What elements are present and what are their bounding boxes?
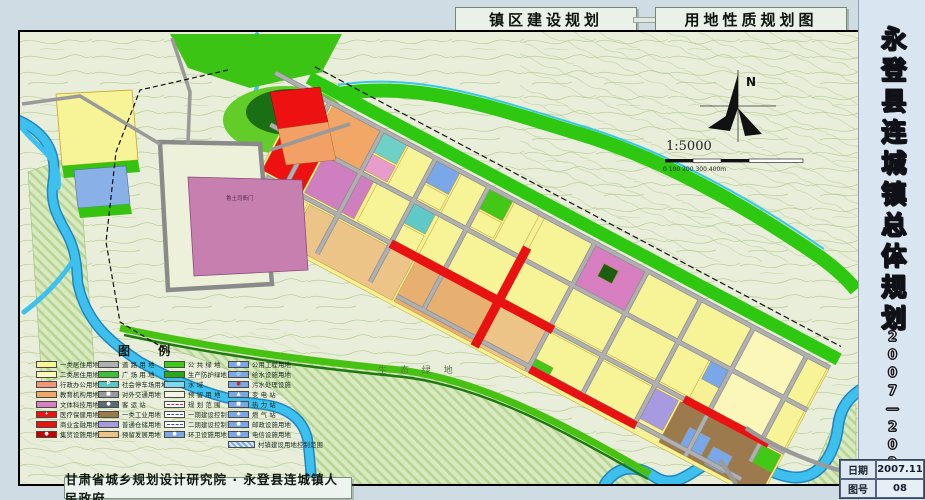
legend-swatch: ● (228, 381, 249, 388)
legend-item-label: 预 留 用 地 (188, 390, 221, 399)
legend-swatch: ● (228, 421, 249, 428)
legend-item: ◎给水设施用地 (228, 371, 323, 378)
legend-line-sample (167, 404, 183, 405)
legend-swatch (164, 401, 185, 408)
legend-swatch (36, 421, 57, 428)
legend-item-label: 二类居住用地 (60, 370, 99, 379)
plan-sheet: 镇区建设规划 用地性质规划图 (0, 0, 925, 500)
legend-item-label: 水 域 (188, 380, 203, 389)
legend-swatch: ▲ (228, 391, 249, 398)
legend-item-label: 给水设施用地 (252, 370, 291, 379)
sheet-title-right: 用地性质规划图 (655, 7, 847, 31)
legend-swatch-icon: P (107, 382, 111, 387)
date-value: 2007.11 (876, 460, 924, 479)
legend-swatch (228, 441, 255, 448)
legend-swatch (98, 411, 119, 418)
legend-swatch-icon: ● (172, 432, 176, 437)
legend-item-label: 电信设施用地 (252, 430, 291, 439)
legend-item-label: 预留发展用地 (122, 430, 161, 439)
legend-item: ■对外交通用地 (98, 391, 167, 398)
legend-swatch: ◆ (228, 411, 249, 418)
legend-line-sample (167, 414, 183, 415)
legend-column: 一类居住用地二类居住用地行政办公用地教育机构用地文体科技用地+医疗保健用地商业金… (36, 361, 99, 438)
legend-swatch (36, 361, 57, 368)
legend-swatch (98, 361, 119, 368)
legend-swatch: ■ (228, 401, 249, 408)
legend-item-label: 普通仓储用地 (122, 420, 161, 429)
legend-item: ▲变 电 站 (228, 391, 323, 398)
legend-item: 教育机构用地 (36, 391, 99, 398)
sheet-title-left-text: 镇区建设规划 (489, 9, 603, 30)
legend-line-sample (167, 424, 183, 425)
legend-swatch: P (98, 381, 119, 388)
title-sidebar: 永登县连城镇总体规划 2007—2020 日期 2007.11 图号 08 (858, 0, 925, 500)
credit-text: 甘肃省城乡规划设计研究院 · 永登县连城镇人民政府 (65, 469, 351, 500)
legend-item-label: 对外交通用地 (122, 390, 161, 399)
legend-item-label: 污水处理设施 (252, 380, 291, 389)
legend-column: 道 路 用 地广 场 用 地P社会停车场用地■对外交通用地●客 运 站一类工业用… (98, 361, 167, 438)
legend-swatch (164, 421, 185, 428)
legend-item-label: 公 共 绿 地 (188, 360, 221, 369)
legend-swatch-icon: ▲ (237, 392, 241, 397)
legend-swatch: ■ (98, 391, 119, 398)
legend-item-label: 一类工业用地 (122, 410, 161, 419)
legend-swatch-icon: + (44, 412, 48, 417)
legend-item-label: 热 力 站 (252, 400, 276, 409)
legend-item: 一类居住用地 (36, 361, 99, 368)
legend-item-label: 变 电 站 (252, 390, 276, 399)
legend-swatch-icon: ■ (236, 402, 241, 407)
legend-swatch-icon: ● (44, 432, 48, 437)
legend-item-label: 商业金融用地 (60, 420, 99, 429)
legend-item-label: 燃 气 站 (252, 410, 276, 419)
sheet-number-label: 图号 (840, 479, 876, 498)
legend-item: 预留发展用地 (98, 431, 167, 438)
legend-item-label: 客 运 站 (122, 400, 146, 409)
date-label: 日期 (840, 460, 876, 479)
sheet-title-left: 镇区建设规划 (455, 7, 637, 31)
legend-swatch (164, 361, 185, 368)
plan-title-vertical: 永登县连城镇总体规划 (880, 26, 905, 336)
sheet-number-value: 08 (876, 479, 924, 498)
legend-item-label: 道 路 用 地 (122, 360, 155, 369)
legend-item: 道 路 用 地 (98, 361, 167, 368)
legend-item-label: 教育机构用地 (60, 390, 99, 399)
legend-item: ●电信设施用地 (228, 431, 323, 438)
legend-swatch: ● (164, 431, 185, 438)
legend-item-label: 文体科技用地 (60, 400, 99, 409)
title-block-table: 日期 2007.11 图号 08 (839, 459, 925, 499)
legend-swatch-icon: ● (106, 402, 110, 407)
legend-item: +医疗保健用地 (36, 411, 99, 418)
legend-item-label: 医疗保健用地 (60, 410, 99, 419)
legend-item: 二类居住用地 (36, 371, 99, 378)
legend-item-label: 环卫设施用地 (188, 430, 227, 439)
legend-item-label: 生产防护绿地 (188, 370, 227, 379)
legend-item: P社会停车场用地 (98, 381, 167, 388)
legend-item: 文体科技用地 (36, 401, 99, 408)
legend-swatch: ◎ (228, 371, 249, 378)
legend-column: ●公用工程用地◎给水设施用地●污水处理设施▲变 电 站■热 力 站◆燃 气 站●… (228, 361, 323, 448)
legend-swatch: + (36, 411, 57, 418)
legend-item-label: 规 划 范 围 (188, 400, 221, 409)
legend-item: ●客 运 站 (98, 401, 167, 408)
map-canvas: 鲁土司衙门 生 态 绿 地 N 1:5000 0 100 200 300 400… (18, 30, 860, 486)
scale-text: 1:5000 (666, 139, 712, 154)
legend-swatch: ● (98, 401, 119, 408)
legend-item: 普通仓储用地 (98, 421, 167, 428)
legend: 图 例 一类居住用地二类居住用地行政办公用地教育机构用地文体科技用地+医疗保健用… (30, 342, 346, 478)
legend-item-label: 公用工程用地 (252, 360, 291, 369)
legend-swatch-icon: ● (236, 382, 240, 387)
legend-swatch (164, 371, 185, 378)
legend-swatch-icon: ● (236, 422, 240, 427)
credit-bar: 甘肃省城乡规划设计研究院 · 永登县连城镇人民政府 (64, 477, 352, 499)
legend-swatch (36, 381, 57, 388)
legend-swatch (36, 371, 57, 378)
legend-item-label: 集贸设施用地 (60, 430, 99, 439)
legend-item: 广 场 用 地 (98, 371, 167, 378)
legend-item: ■热 力 站 (228, 401, 323, 408)
legend-item-label: 邮政设施用地 (252, 420, 291, 429)
legend-item: 商业金融用地 (36, 421, 99, 428)
legend-swatch (36, 401, 57, 408)
legend-swatch (164, 411, 185, 418)
legend-swatch (98, 431, 119, 438)
legend-swatch (164, 381, 185, 388)
legend-item: ◆燃 气 站 (228, 411, 323, 418)
legend-item: 村镇建设用地控制范围 (228, 441, 323, 448)
legend-item: 行政办公用地 (36, 381, 99, 388)
legend-item: ●邮政设施用地 (228, 421, 323, 428)
legend-swatch-icon: ● (236, 432, 240, 437)
eco-label: 生 态 绿 地 (378, 364, 458, 376)
legend-swatch (98, 421, 119, 428)
legend-item: ●公用工程用地 (228, 361, 323, 368)
legend-item-label: 村镇建设用地控制范围 (258, 440, 323, 449)
legend-item: 一类工业用地 (98, 411, 167, 418)
legend-item-label: 广 场 用 地 (122, 370, 155, 379)
legend-item: ●污水处理设施 (228, 381, 323, 388)
legend-swatch-icon: ◆ (237, 412, 241, 417)
sheet-title-right-text: 用地性质规划图 (684, 9, 817, 30)
legend-title: 图 例 (118, 342, 182, 359)
legend-swatch: ● (228, 361, 249, 368)
legend-swatch (98, 371, 119, 378)
landmark-label: 鲁土司衙门 (226, 194, 254, 202)
legend-swatch-icon: ■ (106, 392, 111, 397)
legend-swatch-icon: ● (236, 362, 240, 367)
legend-item-label: 社会停车场用地 (122, 380, 167, 389)
legend-swatch (164, 391, 185, 398)
legend-item: ●集贸设施用地 (36, 431, 99, 438)
legend-swatch-icon: ◎ (236, 372, 240, 377)
legend-swatch: ● (228, 431, 249, 438)
compass-n-label: N (746, 75, 756, 89)
legend-swatch (36, 391, 57, 398)
legend-swatch: ● (36, 431, 57, 438)
scale-ticks: 0 100 200 300 400m (663, 166, 726, 173)
legend-item-label: 行政办公用地 (60, 380, 99, 389)
legend-item-label: 一类居住用地 (60, 360, 99, 369)
